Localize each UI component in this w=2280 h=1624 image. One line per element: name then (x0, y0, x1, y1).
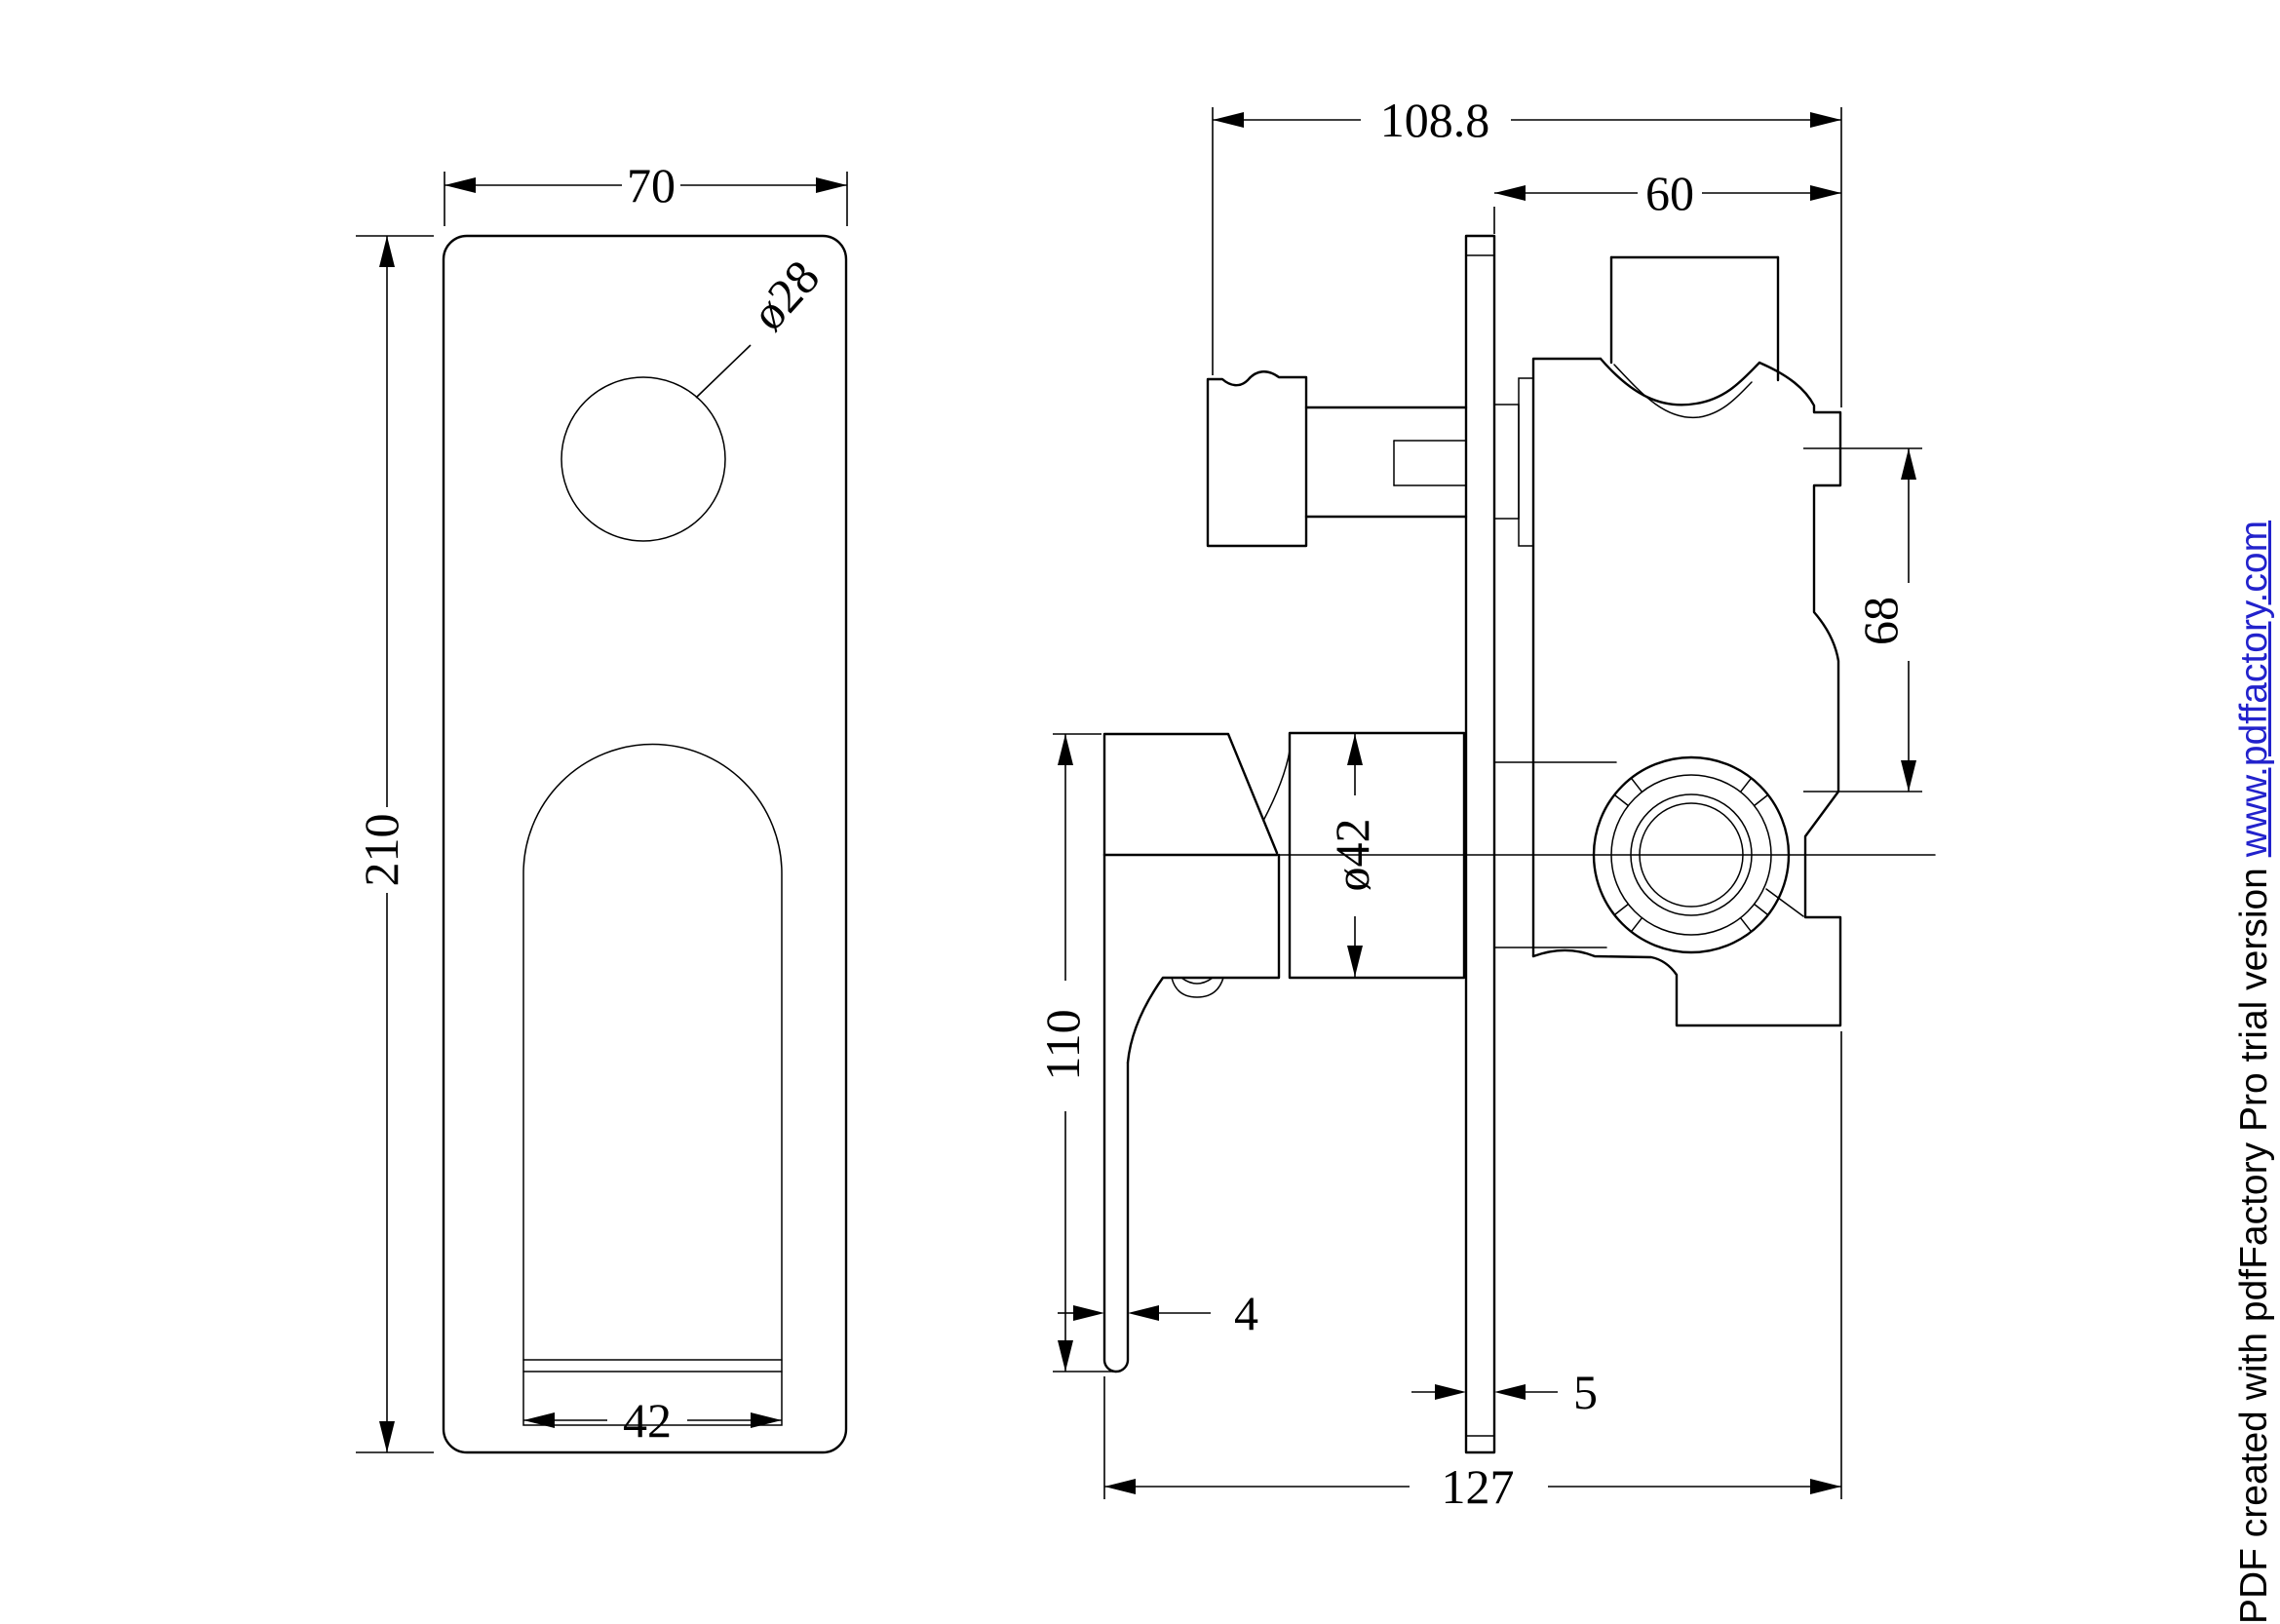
wall-plate-side (1466, 236, 1494, 1452)
dim-hole-diameter: ø28 (694, 250, 830, 400)
dim-plate-height-label: 210 (354, 814, 408, 887)
dim-slot-width-label: 42 (623, 1393, 672, 1448)
technical-drawing: 70 210 ø28 42 (0, 0, 2280, 1611)
pdffactory-watermark-text: PDF created with pdfFactory Pro trial ve… (2233, 857, 2275, 1624)
dim-plate-height: 210 (354, 236, 434, 1452)
dim-hole-diameter-label: ø28 (740, 250, 830, 340)
dim-plate-thickness-label: 5 (1573, 1365, 1598, 1419)
dim-total-depth: 127 (1104, 1031, 1841, 1514)
dim-handle-length-label: 110 (1035, 1009, 1090, 1080)
handle-hole-circle (561, 377, 725, 541)
pdffactory-link[interactable]: www.pdffactory.com (2233, 521, 2275, 857)
outlet-elbow (1208, 371, 1466, 546)
pdffactory-watermark: PDF created with pdfFactory Pro trial ve… (2233, 521, 2276, 1624)
dim-lever-thickness: 4 (1058, 1286, 1258, 1340)
dim-sleeve-diameter-label: ø42 (1325, 819, 1379, 892)
mounting-adapters (1494, 378, 1533, 546)
dim-sleeve-diameter: ø42 (1325, 734, 1379, 977)
dim-plate-width: 70 (444, 158, 847, 226)
diverter-slot-outline (523, 745, 782, 1426)
dim-total-depth-label: 127 (1442, 1459, 1515, 1514)
handle-assembly (1104, 734, 1290, 1372)
dim-slot-width: 42 (523, 1393, 782, 1448)
dim-behind-wall-depth-label: 60 (1645, 166, 1694, 220)
trim-plate-outline (444, 236, 846, 1452)
dim-overall-projection-label: 108.8 (1380, 93, 1490, 147)
dim-overall-projection: 108.8 (1213, 93, 1841, 407)
dim-plate-thickness: 5 (1411, 1365, 1598, 1419)
dim-port-offset-label: 68 (1853, 597, 1908, 645)
handle-paddle-lip (1172, 978, 1223, 997)
side-view: 108.8 60 68 ø42 (1035, 93, 1935, 1514)
dim-behind-wall-depth: 60 (1494, 166, 1841, 234)
drawing-canvas: 70 210 ø28 42 (0, 0, 2280, 1611)
front-view: 70 210 ø28 42 (354, 158, 847, 1452)
dim-plate-width-label: 70 (627, 158, 676, 213)
dim-lever-thickness-label: 4 (1234, 1286, 1258, 1340)
